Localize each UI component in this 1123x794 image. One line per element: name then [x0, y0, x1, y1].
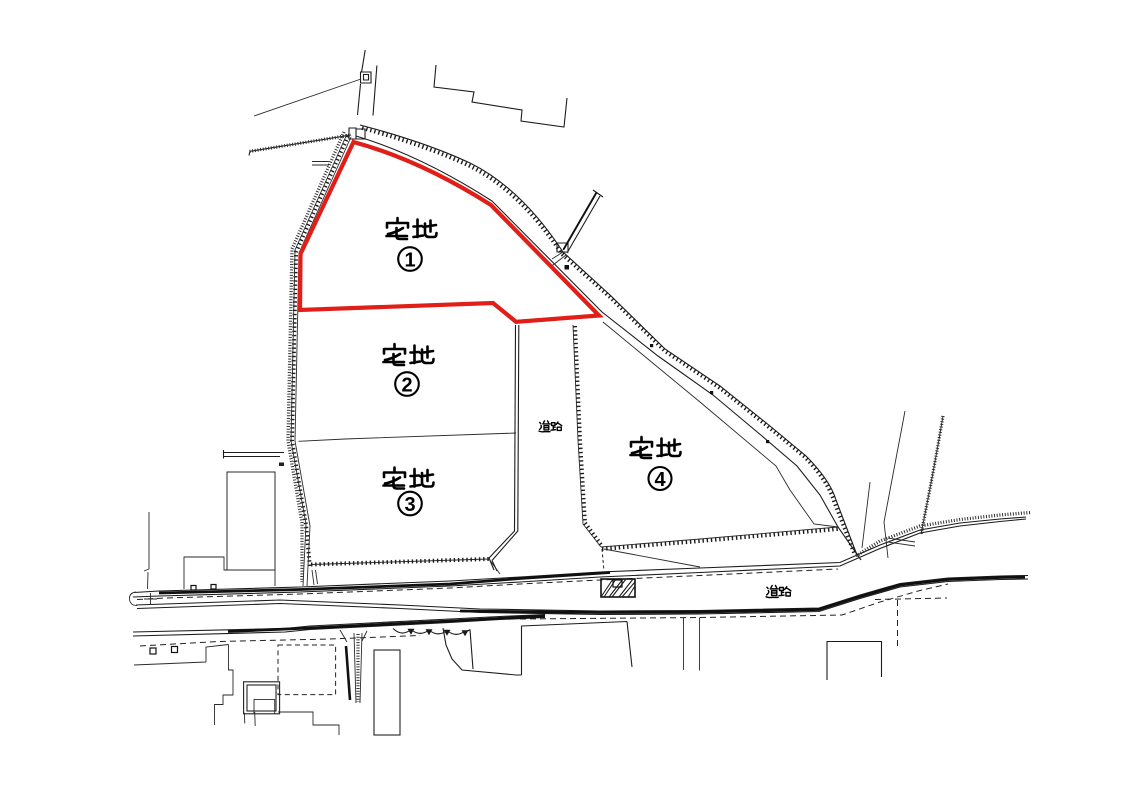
svg-text:1: 1	[404, 250, 415, 272]
svg-text:4: 4	[654, 469, 666, 491]
svg-text:2: 2	[401, 375, 412, 397]
svg-text:3: 3	[404, 494, 415, 516]
